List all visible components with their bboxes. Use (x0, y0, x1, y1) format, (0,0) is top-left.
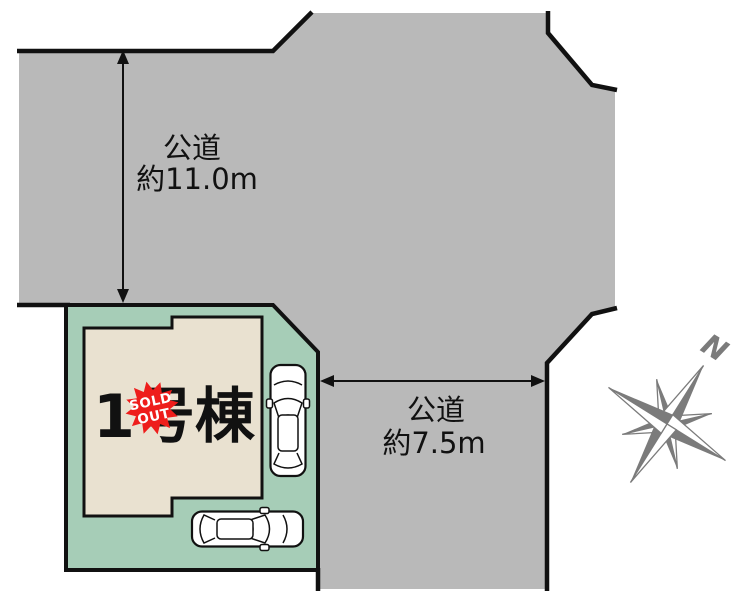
house-number-label: 1号棟 (93, 382, 256, 452)
road-width-label-right-line1: 公道 (407, 393, 465, 427)
north-label: N (695, 327, 734, 369)
road-width-label-right-line2: 約7.5m (382, 426, 485, 460)
site-plan-svg: 1号棟 SOLD OUT (0, 0, 750, 600)
road-width-label-top-line1: 公道 (163, 131, 221, 165)
road-border-right-notch (547, 308, 617, 591)
road-border-top-left (17, 12, 312, 51)
plot-layout-diagram: 1号棟 SOLD OUT (0, 0, 750, 600)
compass-rose-icon: N (572, 297, 750, 519)
car-top-view-icon (267, 365, 310, 476)
road-width-label-top-line2: 約11.0m (136, 162, 258, 196)
car-top-view-icon (192, 508, 303, 551)
